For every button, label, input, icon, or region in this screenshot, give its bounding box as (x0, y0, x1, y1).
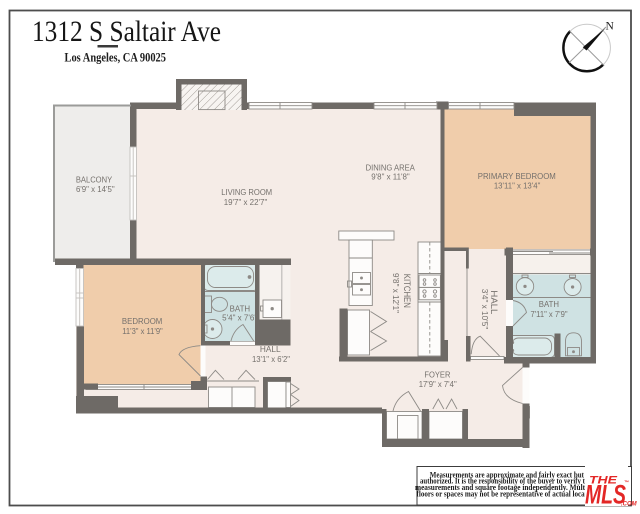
svg-text:BATH: BATH (230, 304, 251, 313)
svg-text:Los Angeles, CA 90025: Los Angeles, CA 90025 (65, 50, 167, 65)
svg-text:™: ™ (624, 480, 629, 486)
svg-text:1312 S Saltair Ave: 1312 S Saltair Ave (32, 15, 221, 48)
svg-text:KITCHEN: KITCHEN (401, 274, 412, 308)
svg-text:PRIMARY BEDROOM: PRIMARY BEDROOM (478, 172, 556, 181)
svg-text:9'8" x 12'1": 9'8" x 12'1" (391, 273, 400, 313)
svg-text:BEDROOM: BEDROOM (122, 317, 163, 326)
svg-text:BATH: BATH (539, 300, 559, 309)
svg-text:17'9" x 7'4": 17'9" x 7'4" (419, 380, 457, 389)
svg-text:7'11" x 7'9": 7'11" x 7'9" (530, 310, 567, 319)
svg-text:N: N (605, 21, 614, 33)
svg-text:9'8" x 11'8": 9'8" x 11'8" (371, 173, 410, 182)
svg-text:13'11" x 13'4": 13'11" x 13'4" (494, 181, 541, 190)
svg-text:HALL: HALL (260, 345, 281, 354)
svg-text:5'4" x 7'6": 5'4" x 7'6" (222, 313, 257, 322)
svg-text:LIVING ROOM: LIVING ROOM (221, 188, 272, 197)
svg-text:DINING AREA: DINING AREA (366, 163, 416, 172)
svg-text:13'1" x 6'2": 13'1" x 6'2" (252, 355, 290, 364)
svg-text:MLS: MLS (585, 480, 626, 510)
svg-text:.COM: .COM (621, 501, 638, 507)
svg-text:6'9" x 14'5": 6'9" x 14'5" (76, 185, 115, 194)
svg-text:FOYER: FOYER (424, 370, 450, 379)
svg-text:11'3" x 11'9": 11'3" x 11'9" (122, 327, 163, 336)
svg-text:19'7" x 22'7": 19'7" x 22'7" (224, 198, 268, 207)
svg-text:BALCONY: BALCONY (76, 176, 113, 185)
svg-text:3'4" x 10'5": 3'4" x 10'5" (480, 289, 489, 330)
